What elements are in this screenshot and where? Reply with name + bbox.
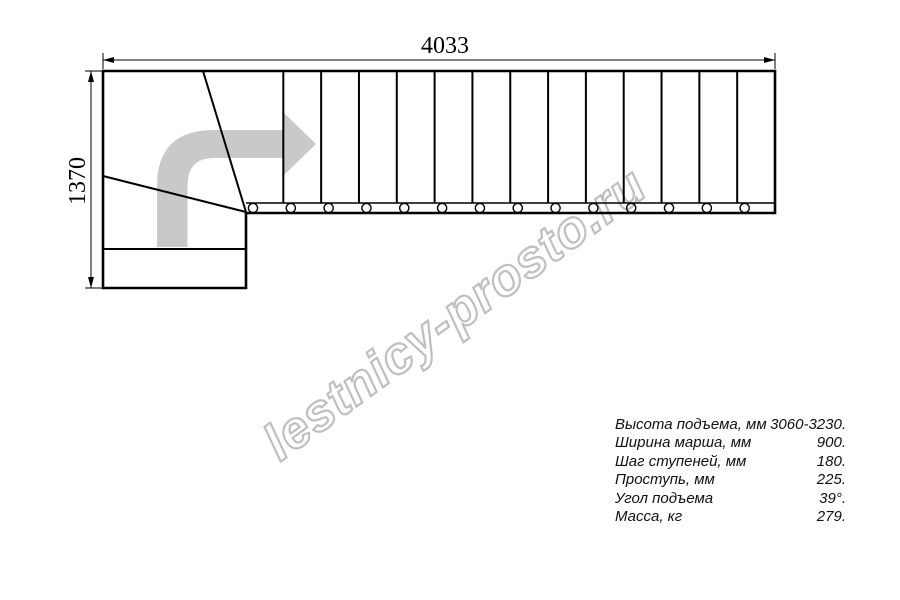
tread-bolt-icon [513,203,522,212]
spec-row: Ширина марша, мм 900. [615,434,846,452]
spec-row: Угол подъема 39°. [615,490,846,508]
stair-drawing-page: lestnicy-prosto.ru 4033 [0,0,900,600]
dim-arrow-right-icon [764,57,775,63]
spec-label: Проступь, мм [615,471,715,489]
tread-bolt-icon [589,203,598,212]
flight-treads [248,71,749,213]
dim-arrow-down-icon [88,277,94,288]
spec-row: Шаг ступеней, мм 180. [615,453,846,471]
tread-bolt-icon [702,203,711,212]
spec-row: Высота подъема, мм 3060-3230. [615,416,846,434]
spec-row: Масса, кг 279. [615,508,846,526]
tread-bolt-icon [324,203,333,212]
spec-label: Шаг ступеней, мм [615,453,746,471]
spec-value: 180. [817,453,846,471]
spec-value: 39°. [819,490,846,508]
spec-label: Ширина марша, мм [615,434,751,452]
tread-bolt-icon [286,203,295,212]
spec-value: 279. [817,508,846,526]
tread-bolt-icon [551,203,560,212]
dim-arrow-left-icon [103,57,114,63]
spec-label: Высота подъема, мм [615,416,767,434]
width-dimension: 4033 [103,33,775,69]
dim-arrow-up-icon [88,71,94,82]
spec-value: 900. [817,434,846,452]
spec-label: Масса, кг [615,508,682,526]
height-dimension: 1370 [65,71,102,288]
tread-bolt-icon [475,203,484,212]
tread-bolt-icon [740,203,749,212]
spec-value: 225. [817,471,846,489]
tread-bolt-icon [438,203,447,212]
height-dimension-label: 1370 [65,157,91,205]
tread-bolt-icon [664,203,673,212]
spec-value: 3060-3230. [770,416,846,434]
tread-bolt-icon [627,203,636,212]
spec-row: Проступь, мм 225. [615,471,846,489]
tread-bolt-icon [248,203,257,212]
spec-label: Угол подъема [615,490,713,508]
specs-table: Высота подъема, мм 3060-3230. Ширина мар… [615,416,846,526]
width-dimension-label: 4033 [421,33,469,59]
tread-bolt-icon [400,203,409,212]
stair-outline [103,71,775,288]
tread-bolt-icon [362,203,371,212]
